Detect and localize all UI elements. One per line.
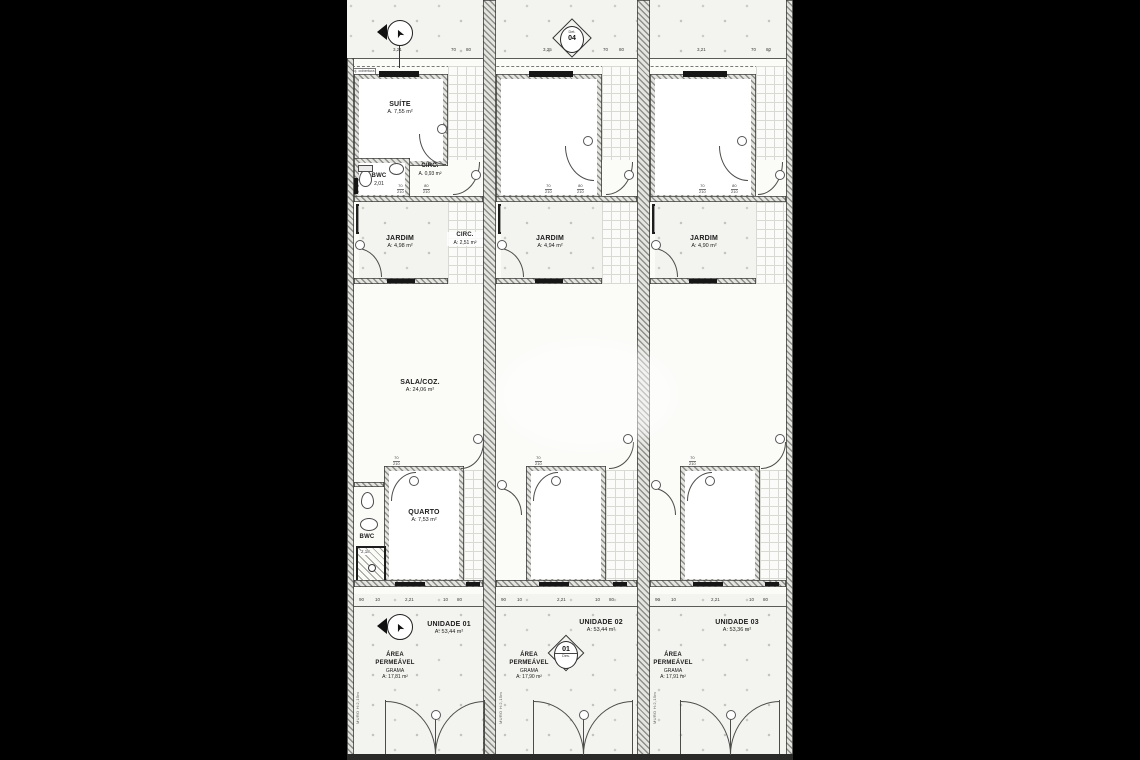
u3-side-door-tag: [651, 480, 661, 490]
u2-rear-window-sill: [539, 582, 569, 586]
u2-rear-door-sill: [613, 582, 627, 586]
u1-muro-label: MURO H:2,15m: [355, 660, 360, 724]
u2-circ-corridor-tiles: [602, 202, 637, 284]
u3-door-dim-80: 80 210: [731, 184, 738, 194]
section-marker-code: 04: [561, 35, 583, 42]
u1-jardim-door-tag: [355, 240, 365, 250]
u3-room-door-tag: [737, 136, 747, 146]
u1-bwc2-top-wall: [354, 482, 384, 487]
u1-bdim-80: 80: [457, 598, 462, 603]
u2-bdim-221: 2,21: [557, 598, 566, 603]
u3-bdim-80: 80: [763, 598, 768, 603]
u1-jardim-label: JARDIM A: 4,98 m²: [365, 234, 435, 250]
dim-top-u3: 3,21: [697, 48, 706, 53]
section-marker-04: Det. 04: [560, 26, 584, 53]
u2-corridor-door-tag: [624, 170, 634, 180]
u3-side-door-arc: [653, 488, 676, 515]
u1-rear-door-sill: [466, 582, 480, 586]
u2-gate-tag: [579, 710, 589, 720]
u1-bwc-toilet-tank-icon: [358, 165, 373, 172]
u1-door-dim-80: 80 210: [423, 184, 430, 194]
u1-rear-window-sill: [395, 582, 425, 586]
u1-north-wedge-icon: [377, 618, 387, 634]
u2-jardim-window-sill: [535, 279, 563, 283]
u1-bwc-label: BWC 2,01: [361, 173, 397, 187]
floor-plan-canvas: proj. cobertura ➤ Det. 04 3,21 70 80 3,2…: [347, 0, 793, 760]
u1-sala-label: SALA/COZ. A: 24,06 m²: [385, 378, 455, 394]
outer-wall-left: [347, 58, 354, 755]
u1-rear-corridor-tiles: [464, 470, 483, 584]
party-wall-2: [637, 0, 650, 755]
u1-title: UNIDADE 01 A: 53,44 m²: [417, 620, 481, 636]
u3-gate-tag: [726, 710, 736, 720]
bottom-dimension-line: [347, 606, 793, 607]
outer-wall-right: [786, 0, 793, 755]
u1-quarto-door-dim: 70 210: [393, 456, 400, 466]
u1-permeavel-label: ÁREA PERMEÁVEL GRAMA A: 17,81 m²: [365, 652, 425, 681]
u3-muro-label: MURO H:2,15m: [652, 660, 657, 724]
u2-side-door-tag: [497, 480, 507, 490]
u2-front-window-sill: [529, 71, 573, 77]
u1-circ-top-label: CIRC. A. 0,93 m²: [413, 163, 447, 177]
u2-rear-corridor-tiles: [606, 470, 637, 584]
u2-muro-label: MURO H:2,15m: [498, 660, 503, 724]
u1-rear-corridor-door-tag: [473, 434, 483, 444]
u1-north-marker: ➤: [387, 614, 413, 640]
north-arrow-icon: ➤: [392, 26, 408, 40]
u1-bdim-10b: 10: [443, 598, 448, 603]
u2-front-corridor-tiles: [602, 66, 637, 160]
u1-bwc2-label: BWC: [353, 534, 381, 542]
u3-corridor-door-tag: [775, 170, 785, 180]
u3-bdim-221: 2,21: [711, 598, 720, 603]
u1-gate-tag: [431, 710, 441, 720]
u1-bwc2-sink-icon: [360, 518, 378, 531]
u2-bdim-90: 90: [501, 598, 506, 603]
u1-corridor-door-tag: [471, 170, 481, 180]
u1-quarto-door-tag: [409, 476, 419, 486]
u1-rear-corridor-door-arc: [461, 442, 484, 469]
u1-door-dim-70: 70 210: [397, 184, 404, 194]
u2-door-dim-80: 80 210: [577, 184, 584, 194]
u3-bdim-90: 90: [655, 598, 660, 603]
u1-shower-dim: 2,18: [361, 550, 370, 555]
u2-side-door-arc: [499, 488, 522, 515]
north-arrow-marker: ➤: [387, 20, 413, 46]
roof-projection-dashed-line: [347, 66, 793, 67]
u1-quarto-label: QUARTO A: 7,53 m²: [389, 508, 459, 524]
u2-jardim-door-tag: [497, 240, 507, 250]
u3-rear-window-sill: [693, 582, 723, 586]
u3-title: UNIDADE 03 A: 53,36 m²: [705, 618, 769, 634]
dim-top-u2: 3,25: [543, 48, 552, 53]
u2-bdim-10a: 10: [517, 598, 522, 603]
north-wedge-icon: [377, 24, 387, 40]
u3-door-dim-70: 70 210: [699, 184, 706, 194]
u1-suite-door-tag: [437, 124, 447, 134]
u1-bdim-221: 2,21: [405, 598, 414, 603]
watermark: [497, 340, 677, 450]
u3-rear-corridor-door-arc: [761, 442, 786, 469]
u3-front-corridor-tiles: [756, 66, 786, 160]
dim-top-u1-70: 70: [451, 48, 456, 53]
u2-jardim-label: JARDIM A: 4,94 m²: [515, 234, 585, 250]
u3-rear-corridor-tiles: [760, 470, 786, 584]
u1-north-arrow-icon: ➤: [392, 620, 408, 634]
dim-top-u1-80: 80: [466, 48, 471, 53]
u1-bwc2-toilet-icon: [361, 492, 374, 509]
u3-jardim-window-sill: [689, 279, 717, 283]
u3-bdim-10a: 10: [671, 598, 676, 603]
u1-circ-label: CIRC. A: 2,51 m²: [447, 232, 483, 246]
u2-detail-marker-01: 01 Des.: [554, 641, 578, 669]
u2-room-door-tag: [583, 136, 593, 146]
u3-front-window-sill: [683, 71, 727, 77]
u1-suite-label: SUÍTE A. 7,55 m²: [365, 100, 435, 116]
u3-rear-door-sill: [765, 582, 779, 586]
u2-bdim-80: 80: [609, 598, 614, 603]
u1-bdim-10a: 10: [375, 598, 380, 603]
u2-rear-corridor-door-tag: [623, 434, 633, 444]
u3-quarto-door-tag: [705, 476, 715, 486]
party-wall-1: [483, 0, 496, 755]
screenshot-stage: proj. cobertura ➤ Det. 04 3,21 70 80 3,2…: [0, 0, 1140, 760]
u2-title: UNIDADE 02 A: 53,44 m²: [569, 618, 633, 634]
u1-suite-window-sill: [379, 71, 419, 77]
dim-top-u2-70: 70: [603, 48, 608, 53]
u3-circ-corridor-tiles: [756, 202, 786, 284]
dim-top-u3-70: 70: [751, 48, 756, 53]
u1-front-corridor-tiles: [448, 66, 483, 160]
u2-rear-corridor-door-arc: [609, 442, 634, 469]
u3-jardim-label: JARDIM A: 4,90 m²: [669, 234, 739, 250]
top-dimension-line: [347, 58, 793, 59]
u1-bdim-90: 90: [359, 598, 364, 603]
u2-bdim-10b: 10: [595, 598, 600, 603]
u1-bwc-door-sill: [354, 178, 358, 194]
u3-quarto-door-dim: 70 210: [689, 456, 696, 466]
u3-bdim-10b: 10: [749, 598, 754, 603]
u2-door-dim-70: 70 210: [545, 184, 552, 194]
u3-rear-corridor-door-tag: [775, 434, 785, 444]
u2-quarto-door-dim: 70 210: [535, 456, 542, 466]
dim-top-u2-80: 80: [619, 48, 624, 53]
dim-top-u3-80: 80: [766, 48, 771, 53]
u1-jardim-window-sill: [387, 279, 415, 283]
dim-top-u1: 3,21: [393, 48, 402, 53]
u3-jardim-door-tag: [651, 240, 661, 250]
u2-quarto-door-tag: [551, 476, 561, 486]
